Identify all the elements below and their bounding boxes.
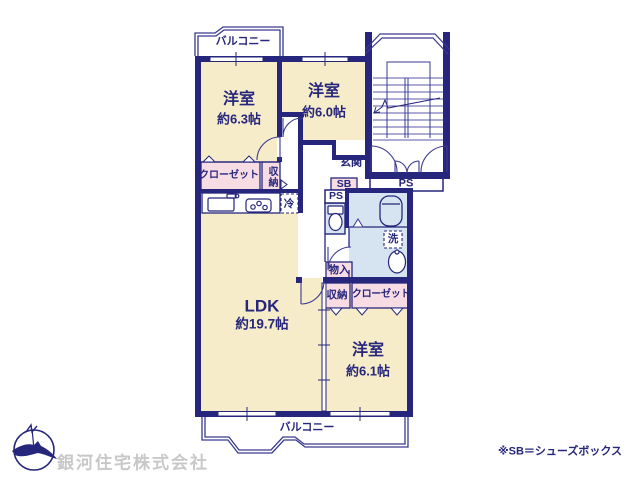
fridge-label: 冷	[284, 199, 295, 210]
company-name: 銀河住宅株式会社	[57, 449, 209, 474]
toilet-fixture	[328, 206, 343, 231]
ldk-name: LDK	[245, 298, 280, 315]
ps-lower-label: PS	[329, 191, 343, 202]
kitchen-counter	[202, 193, 280, 213]
staircase	[365, 34, 450, 140]
closet-bottom-label: クローゼット	[352, 290, 410, 300]
bedroom1-name: 洋室	[223, 92, 255, 108]
balcony-top-label: バルコニー	[216, 37, 271, 48]
shoebox-note: ※SB＝シューズボックス	[498, 447, 622, 458]
washbasin	[389, 250, 406, 273]
entrance-doors	[371, 146, 447, 173]
balcony-bottom-label: バルコニー	[280, 423, 335, 434]
closet-top-label: クローゼット	[199, 171, 259, 181]
bedroom1-size: 約6.3帖	[217, 113, 261, 126]
storage-bottom-label: 収納	[327, 290, 348, 301]
bedroom2-size: 約6.0帖	[302, 106, 346, 119]
genkan-label: 玄関	[340, 158, 362, 169]
ps-upper-label: PS	[399, 179, 414, 190]
bedroom3-name: 洋室	[352, 343, 384, 359]
monoiri-label: 物入	[329, 265, 350, 276]
ldk-size: 約19.7帖	[235, 317, 288, 331]
laundry-label: 洗	[388, 234, 399, 245]
floorplan-drawing	[0, 0, 640, 480]
bedroom3-size: 約6.1帖	[346, 365, 390, 378]
storage-top-label: 収納	[266, 166, 276, 188]
floorplan-page: バルコニー 洋室 約6.3帖 洋室 約6.0帖 玄関 SB PS PS クローゼ…	[0, 0, 640, 480]
sb-label: SB	[337, 179, 352, 190]
company-logo	[12, 425, 57, 470]
bedroom2-name: 洋室	[308, 84, 340, 100]
